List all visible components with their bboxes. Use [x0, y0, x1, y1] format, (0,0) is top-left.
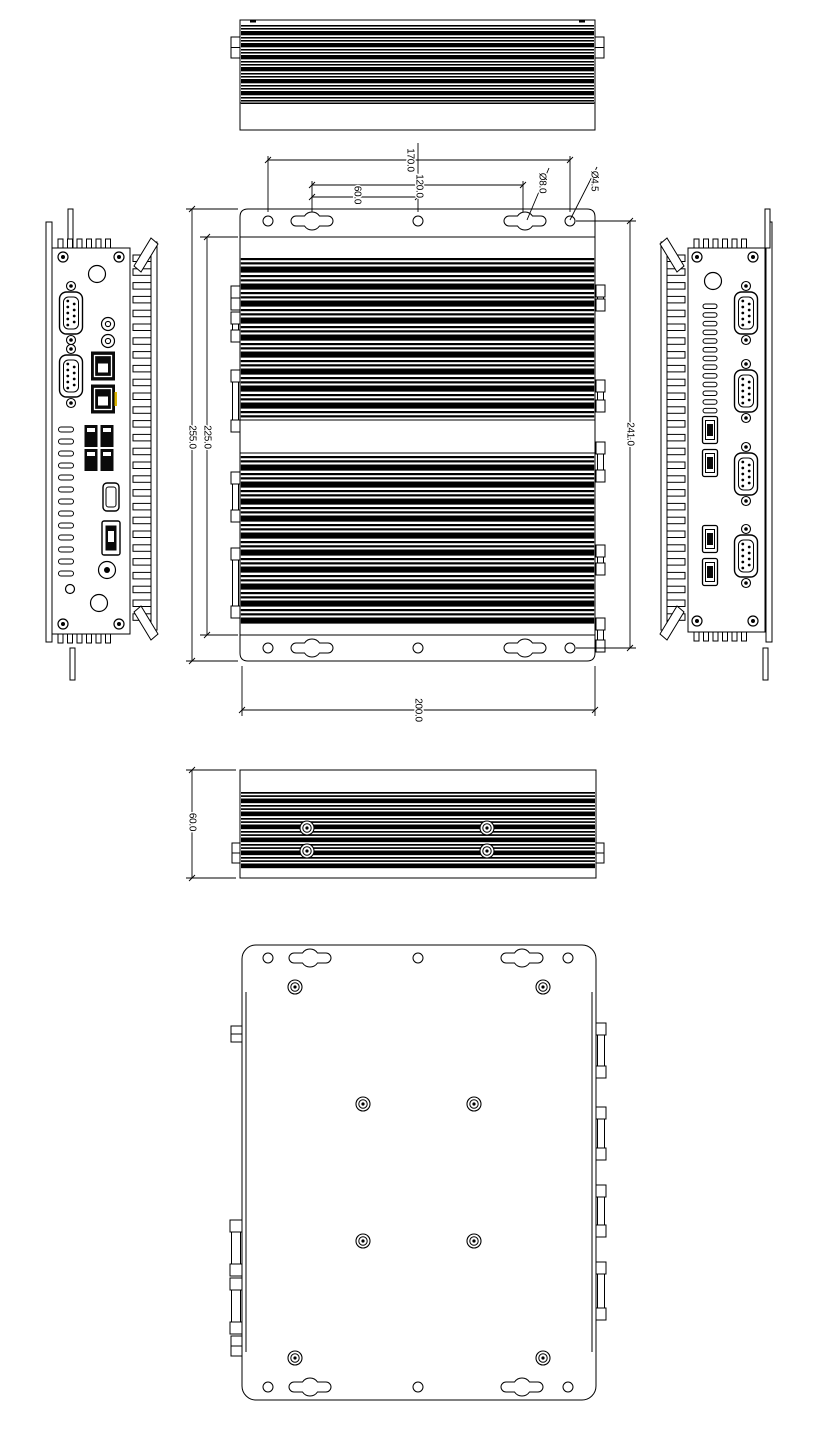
- rect-shape: [596, 563, 605, 575]
- rect-shape: [703, 356, 717, 361]
- side-connector-tab: [596, 1107, 606, 1160]
- rect-shape: [723, 632, 728, 641]
- usb-port: [703, 417, 718, 444]
- rect-shape: [106, 239, 111, 248]
- usb-port: [85, 449, 98, 471]
- vesa-hole: [467, 1097, 481, 1111]
- led-hole: [66, 585, 75, 594]
- rect-shape: [241, 262, 594, 264]
- side-connector-tab: [231, 370, 240, 432]
- rect-shape: [133, 365, 151, 372]
- rect-shape: [241, 49, 594, 51]
- rect-shape: [241, 394, 594, 396]
- mount-hole: [263, 216, 273, 226]
- usb-port: [101, 425, 114, 447]
- rect-shape: [233, 484, 239, 510]
- mount-flange-edge: [766, 222, 772, 642]
- panel-screw: [692, 252, 702, 262]
- rect-shape: [133, 379, 151, 386]
- rect-shape: [241, 851, 595, 856]
- rect-shape: [59, 559, 74, 564]
- rect-shape: [742, 632, 747, 641]
- heatsink-comb: [133, 255, 151, 620]
- rect-shape: [59, 487, 74, 492]
- rect-shape: [231, 548, 240, 560]
- rect-shape: [703, 400, 717, 405]
- rect-shape: [598, 1119, 605, 1148]
- rect-shape: [133, 448, 151, 455]
- bottom-dimension: 200.0: [239, 666, 598, 722]
- rect-shape: [241, 100, 594, 102]
- rect-shape: [241, 562, 594, 564]
- screw-hole: [300, 844, 314, 858]
- rect-shape: [667, 379, 685, 386]
- rect-shape: [596, 299, 605, 311]
- rect-shape: [241, 386, 594, 392]
- rect-shape: [231, 510, 240, 522]
- side-connector-tab: [231, 1336, 242, 1356]
- rect-shape: [241, 313, 594, 315]
- rect-shape: [241, 76, 594, 78]
- rect-shape: [596, 545, 605, 557]
- rect-shape: [241, 579, 594, 581]
- rect-shape: [596, 1225, 606, 1237]
- rect-shape: [133, 476, 151, 483]
- rect-shape: [241, 860, 595, 862]
- rect-shape: [667, 531, 685, 538]
- rect-shape: [241, 499, 594, 505]
- rect-shape: [667, 324, 685, 331]
- rect-shape: [241, 28, 594, 30]
- mount-hole: [263, 953, 273, 963]
- rect-shape: [241, 79, 594, 83]
- side-connector-tab: [231, 37, 240, 58]
- rect-shape: [241, 490, 594, 492]
- rect-shape: [87, 634, 92, 643]
- rect-shape: [241, 528, 594, 530]
- rect-shape: [703, 304, 717, 309]
- dim-label-241: 241.0: [625, 422, 636, 446]
- rect-shape: [667, 490, 685, 497]
- dim-label-dia45: Ø4.5: [589, 171, 600, 192]
- rect-shape: [241, 460, 594, 462]
- rect-shape: [241, 456, 594, 458]
- usb-port: [85, 425, 98, 447]
- rect-shape: [703, 382, 717, 387]
- rect-shape: [596, 618, 605, 630]
- rect-shape: [77, 239, 82, 248]
- rect-shape: [667, 407, 685, 414]
- bracket-tab: [763, 648, 768, 680]
- rect-shape: [59, 463, 74, 468]
- castellated-edge-top: [694, 239, 747, 248]
- rect-shape: [96, 239, 101, 248]
- rect-shape: [241, 352, 594, 358]
- panel-screw: [748, 616, 758, 626]
- rect-shape: [241, 808, 595, 810]
- vesa-hole: [467, 1234, 481, 1248]
- rect-shape: [667, 421, 685, 428]
- dim-label-60-side: 60.0: [187, 813, 198, 832]
- rect-shape: [596, 1185, 606, 1197]
- dim-label-dia8: Ø8.0: [537, 173, 548, 194]
- rect-shape: [596, 285, 605, 297]
- rect-shape: [667, 476, 685, 483]
- rect-shape: [241, 279, 594, 281]
- rect-shape: [241, 541, 594, 543]
- rect-shape: [667, 283, 685, 290]
- rect-shape: [241, 558, 594, 560]
- side-connector-tab: [596, 442, 605, 482]
- rect-shape: [231, 420, 240, 432]
- rect-shape: [231, 472, 240, 484]
- rect-shape: [133, 338, 151, 345]
- rect-shape: [133, 434, 151, 441]
- rect-shape: [596, 1262, 606, 1274]
- rect-shape: [58, 239, 63, 248]
- heatsink-comb: [667, 255, 685, 620]
- rect-shape: [231, 606, 240, 618]
- rect-shape: [703, 330, 717, 335]
- rect-shape: [598, 557, 604, 563]
- usb-port: [703, 526, 718, 553]
- rect-shape: [703, 391, 717, 396]
- rect-shape: [704, 632, 709, 641]
- rect-shape: [241, 864, 595, 869]
- rect-shape: [241, 550, 594, 556]
- rect-shape: [59, 535, 74, 540]
- rect-shape: [59, 511, 74, 516]
- rect-shape: [241, 40, 594, 42]
- antenna-hole: [705, 273, 722, 290]
- dim-label-255: 255.0: [187, 425, 198, 449]
- rect-shape: [241, 64, 594, 66]
- rect-shape: [241, 343, 594, 345]
- power-jack: [99, 562, 116, 579]
- panel-screw: [114, 252, 124, 262]
- rect-shape: [241, 584, 594, 590]
- rect-shape: [133, 462, 151, 469]
- ethernet-port: [91, 385, 115, 414]
- panel-screw: [748, 252, 758, 262]
- dim-label-170: 170.0: [405, 148, 416, 172]
- rect-shape: [133, 296, 151, 303]
- antenna-hole: [89, 266, 106, 283]
- side-connector-tab: [596, 285, 605, 311]
- rect-shape: [241, 818, 595, 820]
- rect-shape: [241, 613, 594, 615]
- side-connector-tab: [596, 1023, 606, 1078]
- rect-shape: [241, 52, 594, 54]
- rect-shape: [241, 67, 594, 71]
- rect-shape: [241, 799, 595, 804]
- rect-shape: [598, 454, 604, 470]
- rect-shape: [667, 503, 685, 510]
- rect-shape: [241, 567, 594, 573]
- rect-shape: [133, 310, 151, 317]
- panel-screw: [692, 616, 702, 626]
- mount-hole: [565, 643, 575, 653]
- left-io-panel-view: [46, 209, 158, 680]
- rect-shape: [241, 61, 594, 63]
- rect-shape: [596, 470, 605, 482]
- displayport: [102, 521, 120, 555]
- rect-shape: [241, 411, 594, 413]
- rect-shape: [241, 524, 594, 526]
- rect-shape: [133, 352, 151, 359]
- rect-shape: [598, 630, 604, 640]
- rect-shape: [241, 482, 594, 488]
- rect-shape: [241, 838, 595, 843]
- rect-shape: [230, 1264, 242, 1276]
- screw-hole: [480, 821, 494, 835]
- rect-shape: [713, 632, 718, 641]
- rect-shape: [694, 632, 699, 641]
- rect-shape: [667, 310, 685, 317]
- rect-shape: [241, 847, 595, 849]
- rect-shape: [598, 1035, 605, 1066]
- rect-shape: [241, 275, 594, 277]
- ethernet-port: [91, 352, 115, 381]
- rect-shape: [241, 37, 594, 39]
- rect-shape: [241, 73, 594, 75]
- rect-shape: [667, 434, 685, 441]
- rect-shape: [667, 586, 685, 593]
- usb-port: [703, 559, 718, 586]
- side-connector-tab: [596, 843, 604, 863]
- rect-shape: [732, 239, 737, 248]
- rect-shape: [596, 442, 605, 454]
- edge-mark: [250, 20, 256, 23]
- rect-shape: [133, 324, 151, 331]
- rect-shape: [87, 239, 92, 248]
- rect-shape: [133, 545, 151, 552]
- rect-shape: [598, 1274, 605, 1308]
- screw-hole: [288, 980, 302, 994]
- top-view-outline: [240, 20, 595, 130]
- rect-shape: [241, 85, 594, 87]
- rect-shape: [133, 421, 151, 428]
- rect-shape: [58, 634, 63, 643]
- rect-shape: [241, 258, 594, 260]
- rect-shape: [133, 407, 151, 414]
- rect-shape: [77, 634, 82, 643]
- rect-shape: [667, 338, 685, 345]
- rect-shape: [667, 393, 685, 400]
- rect-shape: [241, 812, 595, 817]
- mount-hole: [563, 953, 573, 963]
- bottom-view-outline: [242, 945, 596, 1400]
- vesa-hole: [356, 1234, 370, 1248]
- rect-shape: [596, 1148, 606, 1160]
- rect-shape: [59, 427, 74, 432]
- side-connector-tab: [596, 618, 605, 652]
- rect-shape: [241, 360, 594, 362]
- rect-shape: [241, 335, 594, 341]
- panel-screw: [114, 619, 124, 629]
- rect-shape: [241, 284, 594, 290]
- fin-spine: [151, 242, 157, 630]
- side-connector-tab: [596, 1262, 606, 1320]
- dim-label-200: 200.0: [413, 698, 424, 722]
- dim-label-120: 120.0: [414, 174, 425, 198]
- rect-shape: [59, 439, 74, 444]
- rect-shape: [241, 403, 594, 409]
- rect-shape: [241, 347, 594, 349]
- mount-hole: [565, 216, 575, 226]
- rect-shape: [241, 55, 594, 59]
- rect-shape: [241, 821, 595, 823]
- rect-shape: [241, 296, 594, 298]
- mount-flange-edge: [46, 222, 52, 642]
- rect-shape: [703, 365, 717, 370]
- main-top-view: [231, 209, 605, 661]
- rect-shape: [713, 239, 718, 248]
- drawing-page: 170.0 120.0 60.0 Ø8.0 Ø4.5 255.0 225.0 2…: [0, 0, 818, 1437]
- rect-shape: [241, 369, 594, 375]
- highlight-mark: [115, 392, 118, 406]
- bracket-tab: [70, 648, 75, 680]
- rect-shape: [133, 559, 151, 566]
- rect-shape: [241, 43, 594, 47]
- side-connector-tab: [231, 312, 240, 342]
- rect-shape: [732, 632, 737, 641]
- vesa-hole: [356, 1097, 370, 1111]
- castellated-edge-bottom: [58, 634, 111, 643]
- rect-shape: [241, 805, 595, 807]
- antenna-hole: [91, 595, 108, 612]
- rect-shape: [241, 516, 594, 522]
- audio-jack: [102, 318, 115, 331]
- mount-hole: [413, 643, 423, 653]
- rect-shape: [596, 1308, 606, 1320]
- rect-shape: [703, 321, 717, 326]
- castellated-edge-top: [58, 239, 111, 248]
- rect-shape: [133, 586, 151, 593]
- technical-drawing-canvas: 170.0 120.0 60.0 Ø8.0 Ø4.5 255.0 225.0 2…: [0, 0, 818, 1437]
- rect-shape: [694, 239, 699, 248]
- rect-shape: [241, 381, 594, 383]
- rect-shape: [703, 348, 717, 353]
- rect-shape: [241, 834, 595, 836]
- mount-hole: [263, 643, 273, 653]
- rect-shape: [233, 560, 239, 606]
- rect-shape: [241, 31, 594, 35]
- rect-shape: [667, 296, 685, 303]
- usb-port: [101, 449, 114, 471]
- rect-shape: [241, 601, 594, 607]
- rect-shape: [232, 1290, 241, 1322]
- bottom-view: [230, 945, 606, 1400]
- rect-shape: [241, 844, 595, 846]
- panel-screw: [58, 252, 68, 262]
- rect-shape: [241, 494, 594, 496]
- rect-shape: [667, 517, 685, 524]
- rect-shape: [68, 239, 73, 248]
- rect-shape: [233, 382, 239, 420]
- rect-shape: [231, 312, 240, 324]
- side-connector-tab: [231, 548, 240, 618]
- side-connector-tab: [231, 472, 240, 522]
- rect-shape: [230, 1278, 242, 1290]
- rect-shape: [742, 239, 747, 248]
- rect-shape: [241, 831, 595, 833]
- side-connector-tab: [596, 1185, 606, 1237]
- rect-shape: [230, 1322, 242, 1334]
- screw-hole: [288, 1351, 302, 1365]
- side-connector-tab: [231, 1026, 242, 1042]
- rect-shape: [241, 364, 594, 366]
- rect-shape: [703, 313, 717, 318]
- rect-shape: [230, 1220, 242, 1232]
- screw-hole: [480, 844, 494, 858]
- right-io-panel-view: [660, 209, 772, 680]
- rect-shape: [667, 600, 685, 607]
- screw-hole: [536, 980, 550, 994]
- rect-shape: [133, 503, 151, 510]
- rect-shape: [596, 380, 605, 392]
- usb-port: [703, 450, 718, 477]
- rect-shape: [241, 330, 594, 332]
- side-connector-tab: [230, 1220, 242, 1276]
- side-connector-tab: [596, 545, 605, 575]
- rect-shape: [241, 792, 595, 794]
- rect-shape: [241, 326, 594, 328]
- castellated-edge-bottom: [694, 632, 747, 641]
- mount-hole: [263, 1382, 273, 1392]
- rect-shape: [667, 462, 685, 469]
- rect-shape: [241, 618, 594, 624]
- rect-shape: [133, 572, 151, 579]
- audio-jack: [102, 335, 115, 348]
- hdmi-port: [103, 483, 119, 511]
- rect-shape: [596, 1023, 606, 1035]
- rect-shape: [667, 559, 685, 566]
- rect-shape: [667, 545, 685, 552]
- side-profile-view: [232, 770, 604, 878]
- rect-shape: [703, 339, 717, 344]
- rect-shape: [231, 330, 240, 342]
- rect-shape: [241, 377, 594, 379]
- side-connector-tab: [232, 843, 240, 863]
- rect-shape: [68, 634, 73, 643]
- rect-shape: [703, 374, 717, 379]
- rect-shape: [133, 283, 151, 290]
- rect-shape: [598, 392, 604, 400]
- rect-shape: [59, 571, 74, 576]
- rect-shape: [231, 370, 240, 382]
- rect-shape: [241, 507, 594, 509]
- edge-mark: [579, 20, 585, 23]
- rect-shape: [241, 609, 594, 611]
- rect-shape: [133, 531, 151, 538]
- rect-shape: [241, 309, 594, 311]
- rect-shape: [96, 634, 101, 643]
- rect-shape: [241, 473, 594, 475]
- side-connector-tab: [596, 380, 605, 412]
- rect-shape: [241, 267, 594, 273]
- rect-shape: [106, 634, 111, 643]
- rect-shape: [241, 415, 594, 417]
- rect-shape: [133, 517, 151, 524]
- bracket-tab: [765, 209, 770, 248]
- fin-spine: [661, 242, 667, 630]
- rect-shape: [241, 592, 594, 594]
- rect-shape: [241, 25, 594, 27]
- rect-shape: [596, 1107, 606, 1119]
- side-connector-tab: [595, 37, 604, 58]
- rect-shape: [667, 352, 685, 359]
